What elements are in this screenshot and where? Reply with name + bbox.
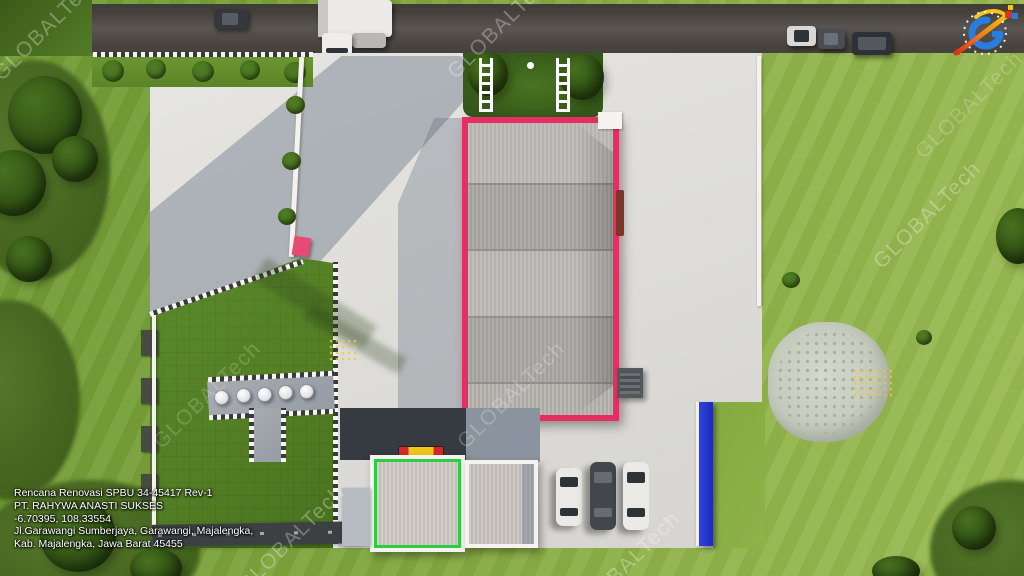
- van-dark: [852, 32, 892, 55]
- fuel-tank-cap: [278, 385, 293, 400]
- globaltech-logo-icon: [948, 4, 1022, 58]
- parked-car-white-2: [623, 462, 649, 530]
- canopy-green-outline: [374, 459, 461, 548]
- flower-speckle: [852, 368, 892, 398]
- car-silver: [787, 26, 816, 46]
- l-path-border: [281, 408, 286, 462]
- trellis-ladder: [479, 58, 493, 112]
- bush: [282, 152, 301, 170]
- tree: [52, 136, 98, 182]
- bush: [916, 330, 932, 345]
- annotation-line-4: Jl.Garawangi Sumberjaya, Garawangi, Maja…: [14, 525, 253, 538]
- fuel-tank-cap: [236, 388, 251, 403]
- bush: [192, 61, 214, 82]
- tree: [952, 506, 996, 550]
- box-truck: [318, 0, 392, 37]
- annotation-line-3: -6.70395, 108.33554: [14, 513, 253, 526]
- car-gray: [818, 29, 845, 49]
- fuel-tank-cap: [257, 387, 272, 402]
- roof-hip-shade: [575, 123, 613, 415]
- bush: [278, 208, 296, 225]
- l-path: [252, 408, 282, 462]
- fuel-tank-cap: [299, 384, 314, 399]
- courtyard-flag: [527, 62, 534, 69]
- truck-cab: [352, 33, 386, 48]
- side-door: [616, 190, 624, 236]
- boundary-wall-east: [757, 56, 761, 306]
- aerial-site-render: GLOBALTech GLOBALTech GLOBALTech GLOBALT…: [0, 0, 1024, 576]
- tree: [6, 236, 52, 282]
- bush: [240, 60, 260, 80]
- building-corner-canopy: [598, 112, 622, 129]
- bush: [146, 59, 166, 79]
- annotation-line-2: PT. RAHYWA ANASTI SUKSES: [14, 500, 253, 513]
- bush: [286, 96, 305, 114]
- bush: [102, 60, 124, 82]
- l-path-border: [249, 408, 254, 462]
- flower-speckle: [328, 338, 358, 364]
- generator-box: [617, 368, 643, 398]
- annotation-line-1: Rencana Renovasi SPBU 34-45417 Rev-1: [14, 487, 253, 500]
- canopy-right: [465, 460, 538, 548]
- car-dark-top: [214, 9, 248, 29]
- bush: [782, 272, 800, 288]
- parked-car-white-1: [556, 468, 582, 526]
- annotation-line-5: Kab. Majalengka, Jawa Barat 45455: [14, 538, 253, 551]
- east-grass-patch: [713, 402, 765, 548]
- project-annotation: Rencana Renovasi SPBU 34-45417 Rev-1 PT.…: [14, 487, 253, 551]
- canopy-left: [370, 455, 465, 552]
- blue-barrier: [699, 402, 713, 546]
- pink-gate: [292, 236, 312, 257]
- trellis-ladder: [556, 58, 570, 112]
- globaltech-logo: [948, 4, 1022, 58]
- parked-car-dark: [590, 462, 616, 530]
